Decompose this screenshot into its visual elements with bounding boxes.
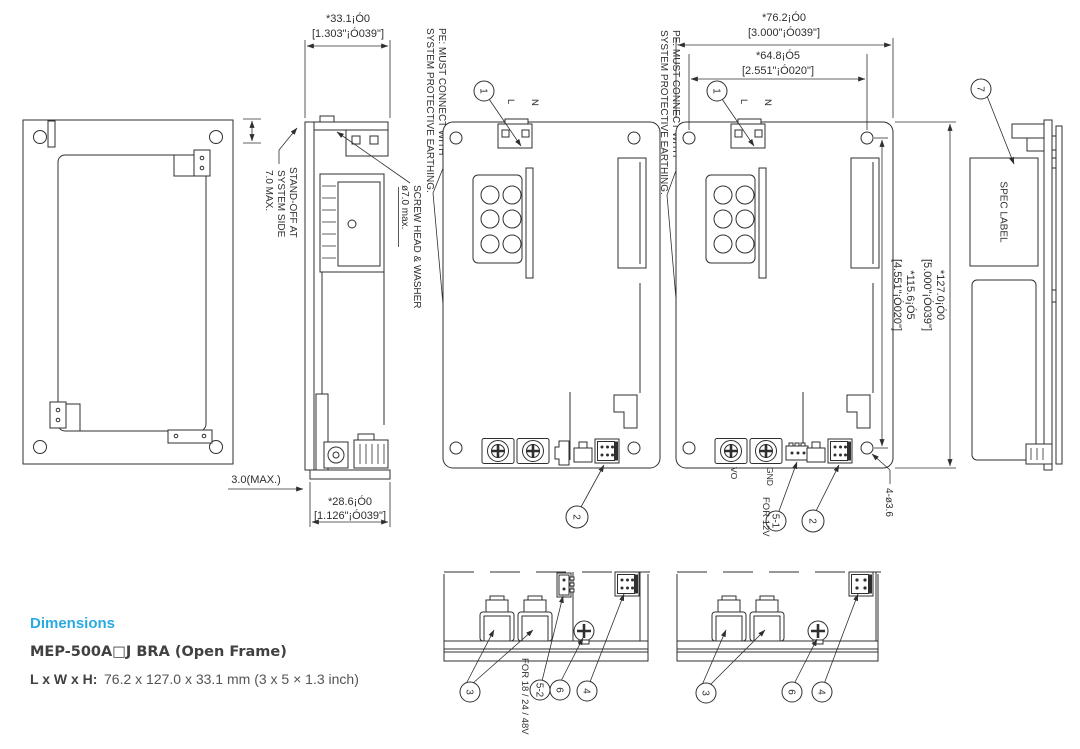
base-plate — [444, 641, 648, 649]
corner-hole — [210, 131, 223, 144]
standoff-note-line1: STAND-OFF AT — [287, 167, 298, 238]
title-block: Dimensions MEP-500A□J BRA (Open Frame) L… — [30, 615, 359, 687]
mounting-hole — [450, 442, 462, 454]
standoff-dimension: STAND-OFF AT SYSTEM SIDE 7.0 MAX. — [243, 119, 298, 238]
heatsink-bar — [759, 168, 766, 278]
ac-input-terminal — [731, 124, 765, 148]
callout-number: 5-2 — [534, 683, 545, 698]
bottom-view-a: 3 5-2 6 4 FOR 18 / 24 / 48V — [444, 572, 650, 735]
callout-number: 4 — [816, 689, 827, 695]
view-top-frame-b: L N VO GND — [676, 99, 893, 486]
dim-depth-mm: *33.1¡Ó0 — [326, 12, 370, 25]
bottom-view-b: 3 6 4 — [677, 572, 881, 703]
callout-number: 1 — [711, 88, 722, 94]
switch-icon — [807, 448, 825, 462]
mounting-hole — [861, 132, 873, 144]
mounting-hole — [450, 132, 462, 144]
base-flange — [310, 470, 390, 479]
standoff-note-line3: 7.0 MAX. — [263, 170, 274, 211]
dim-hole-span-w-in: [2.551"¡Ó020"] — [742, 64, 814, 77]
callout-number: 6 — [554, 687, 565, 693]
dim-depth: *33.1¡Ó0 [1.303"¡Ó039"] — [305, 12, 390, 118]
dim-base-in: [1.126"¡Ó039"] — [314, 509, 386, 522]
terminal-label-n: N — [529, 99, 540, 106]
callout-number: 3 — [700, 690, 711, 696]
lwh-label: L x W x H: — [30, 671, 97, 687]
view-side-spec: SPEC LABEL — [970, 120, 1062, 470]
view-side-profile — [305, 116, 390, 479]
edge-slot — [48, 121, 55, 147]
model-title: MEP-500A□J BRA (Open Frame) — [30, 644, 287, 660]
mounting-hole — [628, 132, 640, 144]
section-title: Dimensions — [30, 615, 115, 632]
pcb-clip — [194, 150, 210, 176]
switch-icon — [574, 448, 592, 462]
pcb-clip — [50, 402, 66, 428]
side-connector — [354, 440, 388, 468]
terminal-label-gnd: GND — [765, 467, 775, 486]
dim-mounting-holes-text: 4-ø3.6 — [883, 488, 894, 517]
dim-width: *76.2¡Ó0 [3.000"¡Ó039"] *64.8¡Ó5 [2.551"… — [676, 11, 893, 130]
corner-hole — [34, 441, 47, 454]
callout-7: 7 — [971, 79, 1014, 164]
screw-note-line1: SCREW HEAD & WASHER — [411, 185, 422, 309]
callout-2-right: 2 — [802, 465, 839, 532]
callout-number: 2 — [571, 514, 582, 520]
dim-width-mm: *76.2¡Ó0 — [762, 11, 806, 24]
dim-depth-in: [1.303"¡Ó039"] — [312, 27, 384, 40]
technical-drawing: STAND-OFF AT SYSTEM SIDE 7.0 MAX. *33.1¡… — [0, 0, 1080, 749]
dim-width-in: [3.000"¡Ó039"] — [748, 26, 820, 39]
top-bracket — [1012, 124, 1044, 138]
dim-height-in: [5.000"¡Ó039"] — [921, 259, 934, 331]
dim-base-mm: *28.6¡Ó0 — [328, 495, 372, 508]
view-rear-plate — [23, 120, 233, 464]
base-plate — [444, 652, 648, 661]
mounting-hole — [628, 442, 640, 454]
screw-head — [320, 116, 334, 122]
top-flange — [314, 122, 388, 130]
terminal-label-n: N — [762, 99, 773, 106]
callout-number: 2 — [807, 518, 818, 524]
corner-hole — [34, 131, 47, 144]
side-plate — [1044, 120, 1052, 470]
for-18-24-48v-note: FOR 18 / 24 / 48V — [519, 658, 530, 735]
system-plate — [305, 122, 314, 470]
callout-2-left: 2 — [566, 465, 604, 528]
callout-number: 4 — [581, 688, 592, 694]
side-heatsink — [851, 158, 879, 268]
terminal-label-l: L — [738, 99, 749, 104]
ac-input-terminal — [498, 124, 532, 148]
screw-note-line2: ø7.0 max. — [399, 185, 410, 229]
spec-label-text: SPEC LABEL — [998, 181, 1009, 243]
terminal-label-vo: VO — [729, 467, 739, 480]
mounting-hole — [861, 442, 873, 454]
base-plate — [677, 652, 878, 661]
dim-height-mm: *127.0¡Ó0 — [934, 270, 947, 320]
dim-hole-span-h-mm: *115.6¡Ó5 — [904, 270, 917, 319]
outer-plate — [1056, 126, 1062, 464]
dim-hole-span-h-in: [4.551"¡Ó020"] — [891, 259, 904, 331]
dim-pcb-clearance: 3.0(MAX.) — [231, 474, 281, 486]
view-top-frame-a: L N — [443, 99, 660, 468]
terminal-label-l: L — [505, 99, 516, 104]
lwh-value: 76.2 x 127.0 x 33.1 mm (3 x 5 × 1.3 inch… — [104, 671, 359, 687]
callout-number: 3 — [464, 689, 475, 695]
callout-number: 7 — [975, 86, 986, 92]
component-outline — [972, 280, 1036, 460]
bottom-connector — [1026, 444, 1052, 464]
base-plate — [677, 641, 878, 649]
dim-base: *28.6¡Ó0 [1.126"¡Ó039"] 3.0(MAX.) — [228, 474, 390, 527]
standoff-note-line2: SYSTEM SIDE — [275, 170, 286, 238]
callout-number: 1 — [478, 88, 489, 94]
dim-hole-span-w-mm: *64.8¡Ó5 — [756, 49, 800, 62]
dimension-drawing-page: STAND-OFF AT SYSTEM SIDE 7.0 MAX. *33.1¡… — [0, 0, 1080, 749]
transformer-block — [320, 174, 384, 272]
heatsink-bar — [526, 168, 533, 278]
for-12v-note: FOR 12V — [760, 497, 771, 537]
callout-number: 6 — [786, 689, 797, 695]
mounting-hole — [683, 442, 695, 454]
pe-note-line2: SYSTEM PROTECTIVE EARTHING. — [658, 30, 669, 195]
mounting-hole — [683, 132, 695, 144]
standoff-leader — [279, 128, 297, 164]
pe-note-line2: SYSTEM PROTECTIVE EARTHING. — [424, 28, 435, 193]
side-heatsink — [618, 158, 646, 268]
